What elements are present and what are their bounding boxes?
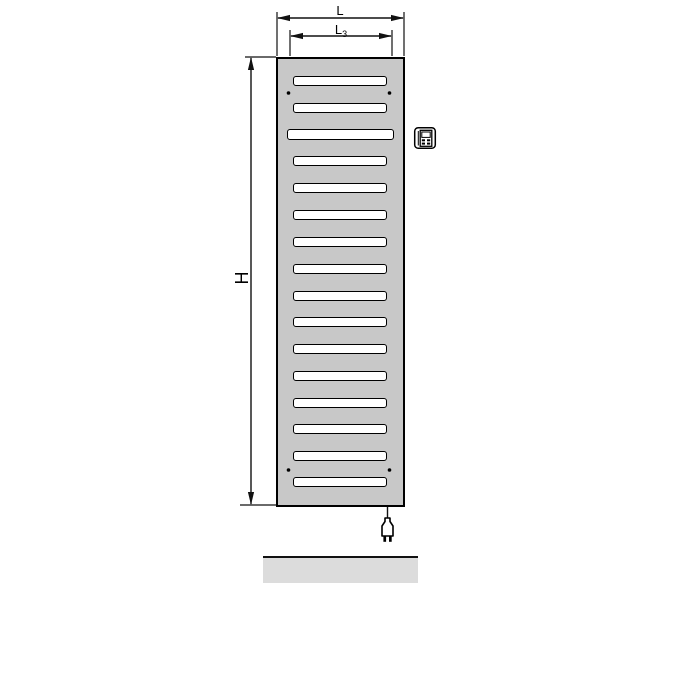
radiator-slat bbox=[293, 398, 387, 408]
radiator-slat bbox=[293, 183, 387, 193]
radiator-slat bbox=[293, 264, 387, 274]
radiator-slat bbox=[293, 371, 387, 381]
floor-bar bbox=[263, 556, 418, 583]
power-plug-icon bbox=[382, 507, 393, 542]
dimension-label-overall-width: L bbox=[336, 4, 343, 17]
radiator-slat-wide bbox=[287, 129, 394, 140]
dimension-label-inner-width: L3 bbox=[335, 23, 347, 39]
radiator-slats bbox=[278, 59, 403, 505]
control-unit-icon bbox=[415, 128, 436, 149]
radiator-slat bbox=[293, 451, 387, 461]
radiator-slat bbox=[293, 76, 387, 86]
radiator-slat bbox=[293, 237, 387, 247]
radiator-slat bbox=[293, 317, 387, 327]
radiator-slat bbox=[293, 156, 387, 166]
diagram-stage: L L3 H bbox=[0, 0, 700, 700]
radiator-slat bbox=[293, 424, 387, 434]
radiator-body bbox=[276, 57, 405, 507]
radiator-slat bbox=[293, 291, 387, 301]
radiator-slat bbox=[293, 103, 387, 113]
dimension-label-inner-width-sub: 3 bbox=[342, 29, 347, 39]
radiator-slat bbox=[293, 210, 387, 220]
dimension-label-height: H bbox=[233, 272, 251, 285]
radiator-slat bbox=[293, 477, 387, 487]
radiator-slat bbox=[293, 344, 387, 354]
